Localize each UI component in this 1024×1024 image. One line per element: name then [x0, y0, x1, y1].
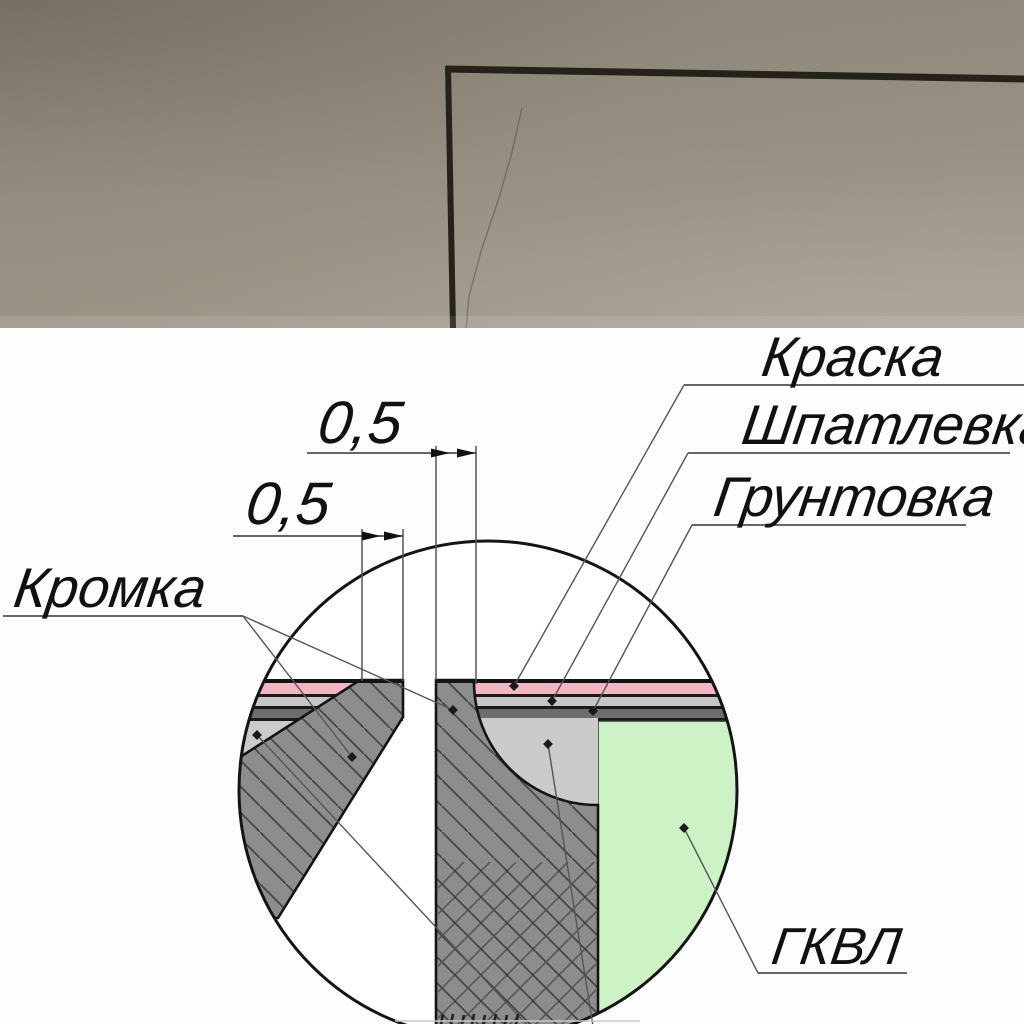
label-paint-text: Краска — [758, 325, 948, 388]
joint-detail-drawing: 0,5 0,5 — [0, 0, 1024, 1024]
dimension-upper: 0,5 — [307, 388, 476, 457]
label-primer: Грунтовка — [692, 465, 999, 528]
label-filler-text: Шпатлевка — [738, 393, 1024, 456]
primer-layer-right — [436, 709, 740, 718]
layer-border — [436, 694, 740, 697]
dimension-value-lower: 0,5 — [242, 469, 335, 537]
gkvl-board — [598, 721, 740, 1024]
dim-arrow — [362, 532, 381, 541]
coating-layers-right — [436, 683, 740, 721]
label-paint: Краска — [684, 325, 1024, 388]
dimension-value-upper: 0,5 — [314, 388, 407, 456]
dim-arrow — [431, 449, 450, 458]
filler-layer-right — [436, 697, 740, 706]
dimension-lower: 0,5 — [233, 469, 403, 540]
right-board-crosshatch — [438, 862, 596, 1024]
paint-layer-right — [436, 683, 740, 694]
label-primer-text: Грунтовка — [710, 465, 999, 528]
label-gkvl-text: ГКВЛ — [768, 918, 904, 976]
label-filler: Шпатлевка — [688, 393, 1024, 456]
dim-arrow — [384, 532, 403, 541]
layer-border — [436, 706, 740, 709]
dim-arrow — [457, 449, 476, 458]
label-gkvl: ГКВЛ — [758, 918, 907, 976]
label-edge: Кромка — [3, 556, 243, 619]
screenshot: 0,5 0,5 — [0, 0, 1024, 1024]
label-edge-text: Кромка — [10, 556, 210, 619]
